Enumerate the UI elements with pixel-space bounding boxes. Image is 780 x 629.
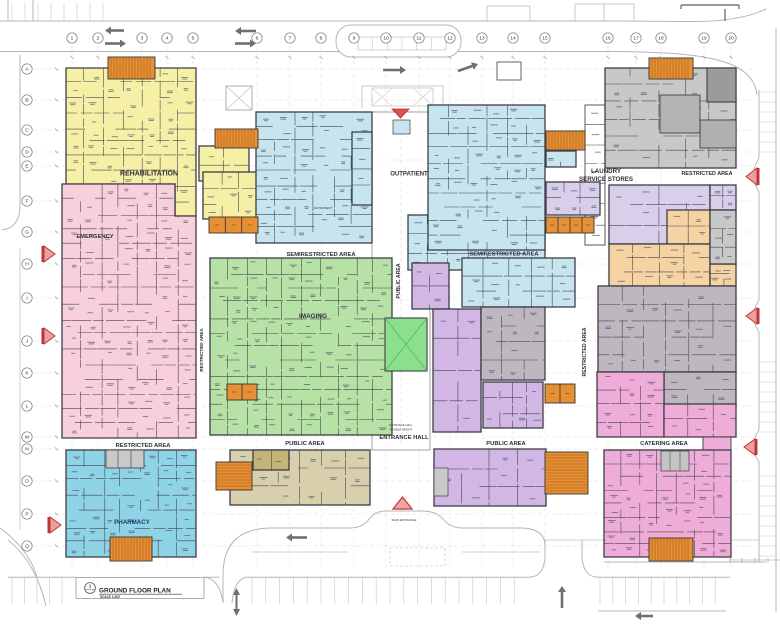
svg-text:16: 16 xyxy=(605,36,611,42)
svg-text:12: 12 xyxy=(447,36,453,42)
svg-text:7: 7 xyxy=(289,36,292,42)
svg-text:6: 6 xyxy=(256,36,259,42)
svg-text:SEMIRESTRICTED AREA: SEMIRESTRICTED AREA xyxy=(286,252,356,258)
svg-text:1: 1 xyxy=(71,36,74,42)
svg-text:RESTRICTED AREA: RESTRICTED AREA xyxy=(199,328,204,372)
svg-text:N: N xyxy=(25,447,29,453)
svg-text:PUBLIC AREA: PUBLIC AREA xyxy=(396,263,402,299)
svg-text:11: 11 xyxy=(417,36,422,42)
svg-text:17: 17 xyxy=(633,36,639,42)
svg-text:19: 19 xyxy=(701,36,707,42)
svg-text:P: P xyxy=(25,512,28,518)
svg-text:L: L xyxy=(26,404,29,410)
svg-text:2: 2 xyxy=(97,36,100,42)
svg-text:10: 10 xyxy=(383,36,389,42)
svg-text:RESTRICTED AREA: RESTRICTED AREA xyxy=(681,171,732,177)
svg-text:M: M xyxy=(25,435,29,441)
svg-text:IMAGING: IMAGING xyxy=(299,313,327,320)
svg-text:13: 13 xyxy=(479,36,485,42)
svg-text:9: 9 xyxy=(353,36,356,42)
svg-text:ENTRANCE HALL: ENTRANCE HALL xyxy=(379,435,429,441)
svg-text:18: 18 xyxy=(658,36,664,42)
svg-text:8: 8 xyxy=(320,36,323,42)
svg-text:4: 4 xyxy=(166,36,169,42)
svg-text:SEMIRESTRICTED AREA: SEMIRESTRICTED AREA xyxy=(469,252,539,258)
svg-text:SCALE 1:200: SCALE 1:200 xyxy=(100,595,120,599)
svg-text:LAUNDRY: LAUNDRY xyxy=(591,168,622,175)
svg-text:Q: Q xyxy=(25,544,29,550)
svg-text:EMERGENCY: EMERGENCY xyxy=(76,234,113,240)
svg-text:REHABILITATION: REHABILITATION xyxy=(120,171,178,178)
svg-text:I: I xyxy=(26,296,27,302)
svg-text:GROUND FLOOR PLAN: GROUND FLOOR PLAN xyxy=(99,588,171,595)
svg-text:14: 14 xyxy=(510,36,516,42)
svg-text:15: 15 xyxy=(542,36,548,42)
svg-text:D: D xyxy=(25,150,29,156)
svg-text:3: 3 xyxy=(141,36,144,42)
svg-text:OUTPATIENT: OUTPATIENT xyxy=(314,206,333,210)
svg-text:OUTPATIENT: OUTPATIENT xyxy=(390,172,428,178)
svg-text:SERVICE STORES: SERVICE STORES xyxy=(579,176,633,183)
svg-text:20: 20 xyxy=(728,36,734,42)
svg-text:CATERING AREA: CATERING AREA xyxy=(640,441,688,447)
svg-text:RESTRICTED AREA: RESTRICTED AREA xyxy=(582,327,588,376)
svg-text:H: H xyxy=(25,262,29,268)
svg-text:ENTRANCE HALL: ENTRANCE HALL xyxy=(389,423,413,427)
svg-text:RESTRICTED AREA: RESTRICTED AREA xyxy=(116,443,172,449)
svg-text:B: B xyxy=(25,98,28,104)
svg-text:DOUBLE HEIGHT: DOUBLE HEIGHT xyxy=(390,428,413,432)
svg-text:PUBLIC AREA: PUBLIC AREA xyxy=(285,441,325,447)
svg-text:O: O xyxy=(25,479,29,485)
svg-text:MAIN ENTRANCE: MAIN ENTRANCE xyxy=(392,518,417,522)
svg-text:G: G xyxy=(25,230,29,236)
svg-text:E: E xyxy=(25,164,28,170)
svg-text:C: C xyxy=(25,128,29,134)
svg-text:5: 5 xyxy=(192,36,195,42)
svg-text:PUBLIC AREA: PUBLIC AREA xyxy=(486,441,526,447)
svg-text:F: F xyxy=(26,199,29,205)
svg-text:PHARMACY: PHARMACY xyxy=(114,519,151,526)
